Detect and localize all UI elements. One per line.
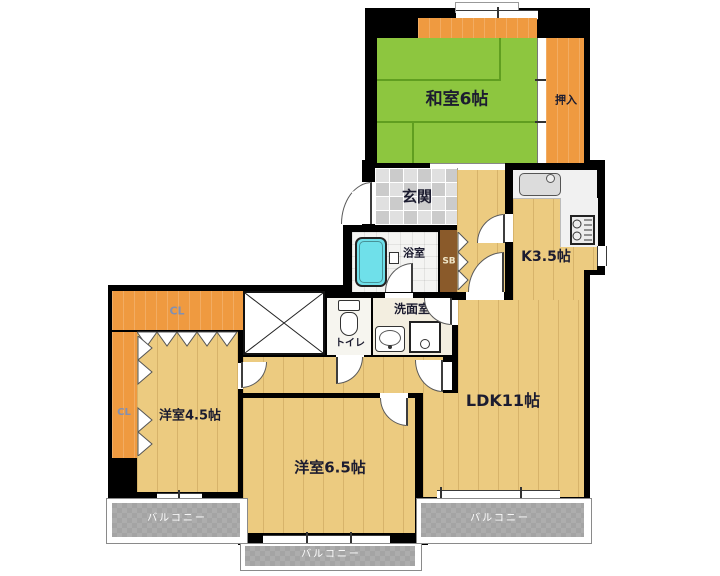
balcony-right-label: バルコニー (470, 514, 530, 524)
kitchen-ldk-floor (513, 270, 584, 300)
oshiire-label: 押入 (555, 95, 577, 106)
folding-door-zigzag (457, 232, 469, 290)
balcony-center-label: バルコニー (301, 550, 361, 560)
shoebox-label: SB (442, 258, 455, 267)
kitchen-label: K3.5帖 (521, 250, 571, 264)
tatami-line (499, 38, 501, 81)
bathroom-label: 浴室 (403, 248, 425, 259)
toilet-tank-icon (338, 300, 360, 311)
tatami-line (377, 121, 537, 123)
balcony-left-label: バルコニー (147, 514, 207, 524)
genkan-label: 玄関 (402, 190, 432, 205)
doorway (443, 362, 452, 390)
washbasin-drain (388, 345, 392, 349)
tatami-line (412, 123, 414, 163)
washbasin-bowl (379, 330, 401, 346)
doorway (505, 214, 513, 242)
entry-door-arc (341, 182, 372, 224)
closet-left-label: CL (117, 408, 131, 418)
washing-machine-door (420, 339, 430, 349)
bedroom-small-label: 洋室4.5帖 (159, 410, 221, 423)
tatami-border-strip (418, 18, 537, 38)
bathtub-inner-line (359, 241, 383, 283)
tatami-line (377, 79, 500, 81)
bedroom-mid-label: 洋室6.5帖 (294, 461, 366, 476)
toilet-label: トイレ (335, 339, 365, 349)
folding-door-zigzag (137, 336, 155, 456)
closet-top-label: CL (169, 306, 184, 317)
storage-x-lines (243, 291, 325, 355)
ldk-floor (423, 393, 458, 497)
kitchen-window (597, 246, 607, 266)
ldk-label: LDK11帖 (466, 393, 540, 409)
toilet-bowl-icon (340, 312, 358, 336)
closet-left (112, 332, 137, 458)
bath-stool-icon (389, 252, 399, 264)
faucet-icon (546, 174, 555, 183)
floor-plan: 押入 和室6帖 玄関 K3.5帖 浴室 SB トイレ (0, 0, 720, 576)
washitsu-label: 和室6帖 (426, 92, 489, 109)
stove-icon (570, 215, 595, 245)
